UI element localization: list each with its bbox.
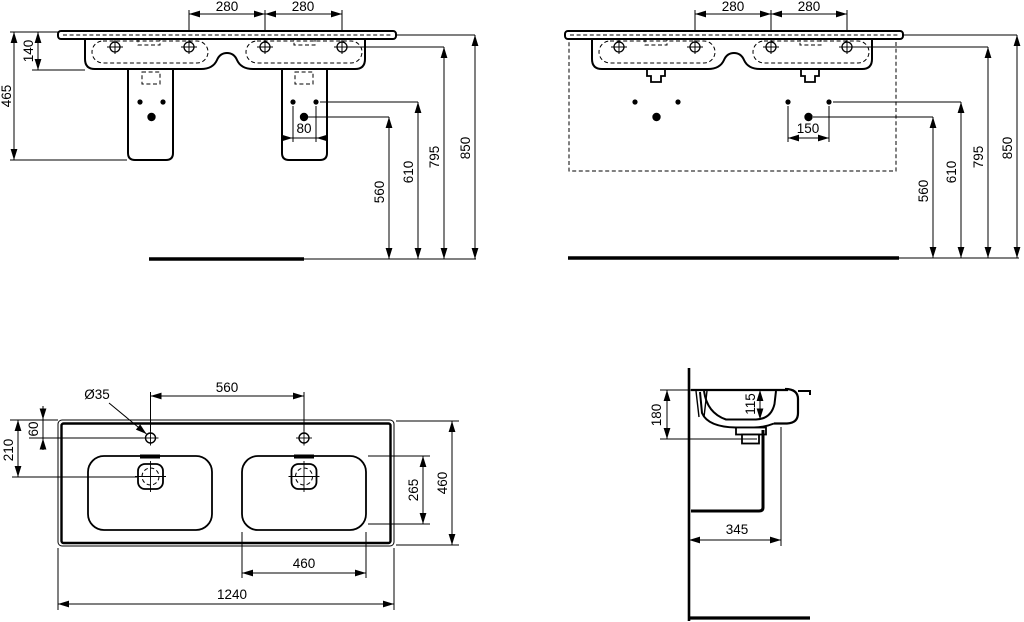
fixing-hole-dot [313,99,318,104]
fixing-hole-dot [632,99,637,104]
dim-label-560: 560 [372,181,387,204]
section-deck-edge [798,391,810,395]
dim-label-210: 210 [1,439,16,462]
drain-stub-left [647,70,665,82]
dimension-drawing: 280 280 140 465 80 560 610 795 850 [0,0,1024,622]
dim-label-795: 795 [427,146,442,169]
dim-label-140: 140 [21,40,36,63]
front-view-wall-hung: 280 280 150 560 610 795 850 [565,0,1019,258]
dim-label-150: 150 [797,121,820,136]
dim-label-610: 610 [944,161,959,184]
plan-view: 560 Ø35 60 210 265 460 460 1240 [1,380,459,610]
dim-label-850: 850 [1000,137,1015,160]
fixing-hole-dot [137,99,142,104]
fixing-hole-dot [785,99,790,104]
dim-label-265: 265 [406,479,421,502]
drain-hole-dot [804,113,812,121]
front-view-with-pedestals: 280 280 140 465 80 560 610 795 850 [0,0,476,259]
dim-label-465: 465 [0,85,14,108]
dim-label-850: 850 [458,137,473,160]
washbasin-slab [565,31,903,39]
drain-stub-right [801,70,819,82]
drain-hole-dot [652,113,660,121]
fixing-hole-dot [160,99,165,104]
dim-label-280-left: 280 [722,0,745,14]
dim-label-280-right: 280 [798,0,821,14]
dim-label-280-right: 280 [292,0,315,14]
dim-label-280-left: 280 [216,0,239,14]
dim-label-610: 610 [401,161,416,184]
dim-label-115: 115 [743,393,758,415]
washbasin-body [85,39,365,69]
dim-label-560: 560 [216,380,239,395]
washbasin-body [592,39,872,69]
dim-label-180: 180 [649,404,664,427]
technical-drawing-canvas: 280 280 140 465 80 560 610 795 850 [0,0,1024,622]
dim-label-460-depth: 460 [435,472,450,495]
section-bowl-interior [704,391,776,420]
extension-lines-top [189,10,342,31]
side-section-view: 180 115 345 [649,368,810,621]
dim-label-560: 560 [916,180,931,203]
fixing-hole-dot [290,99,295,104]
extension-lines-top [695,10,847,31]
dim-label-hole-diameter: Ø35 [84,387,110,402]
washbasin-slab [58,31,396,39]
drain-hole-dot [300,113,308,121]
drain-hole-dot [147,113,155,121]
section-front-lip [774,389,798,424]
dim-label-460-bowl: 460 [293,556,316,571]
dim-label-795: 795 [971,146,986,169]
dim-label-1240: 1240 [217,587,247,602]
fixing-hole-dot [675,99,680,104]
fixing-hole-dot [826,99,831,104]
dim-label-80: 80 [296,121,311,136]
dim-label-345: 345 [726,522,749,537]
dim-label-60: 60 [26,421,41,436]
